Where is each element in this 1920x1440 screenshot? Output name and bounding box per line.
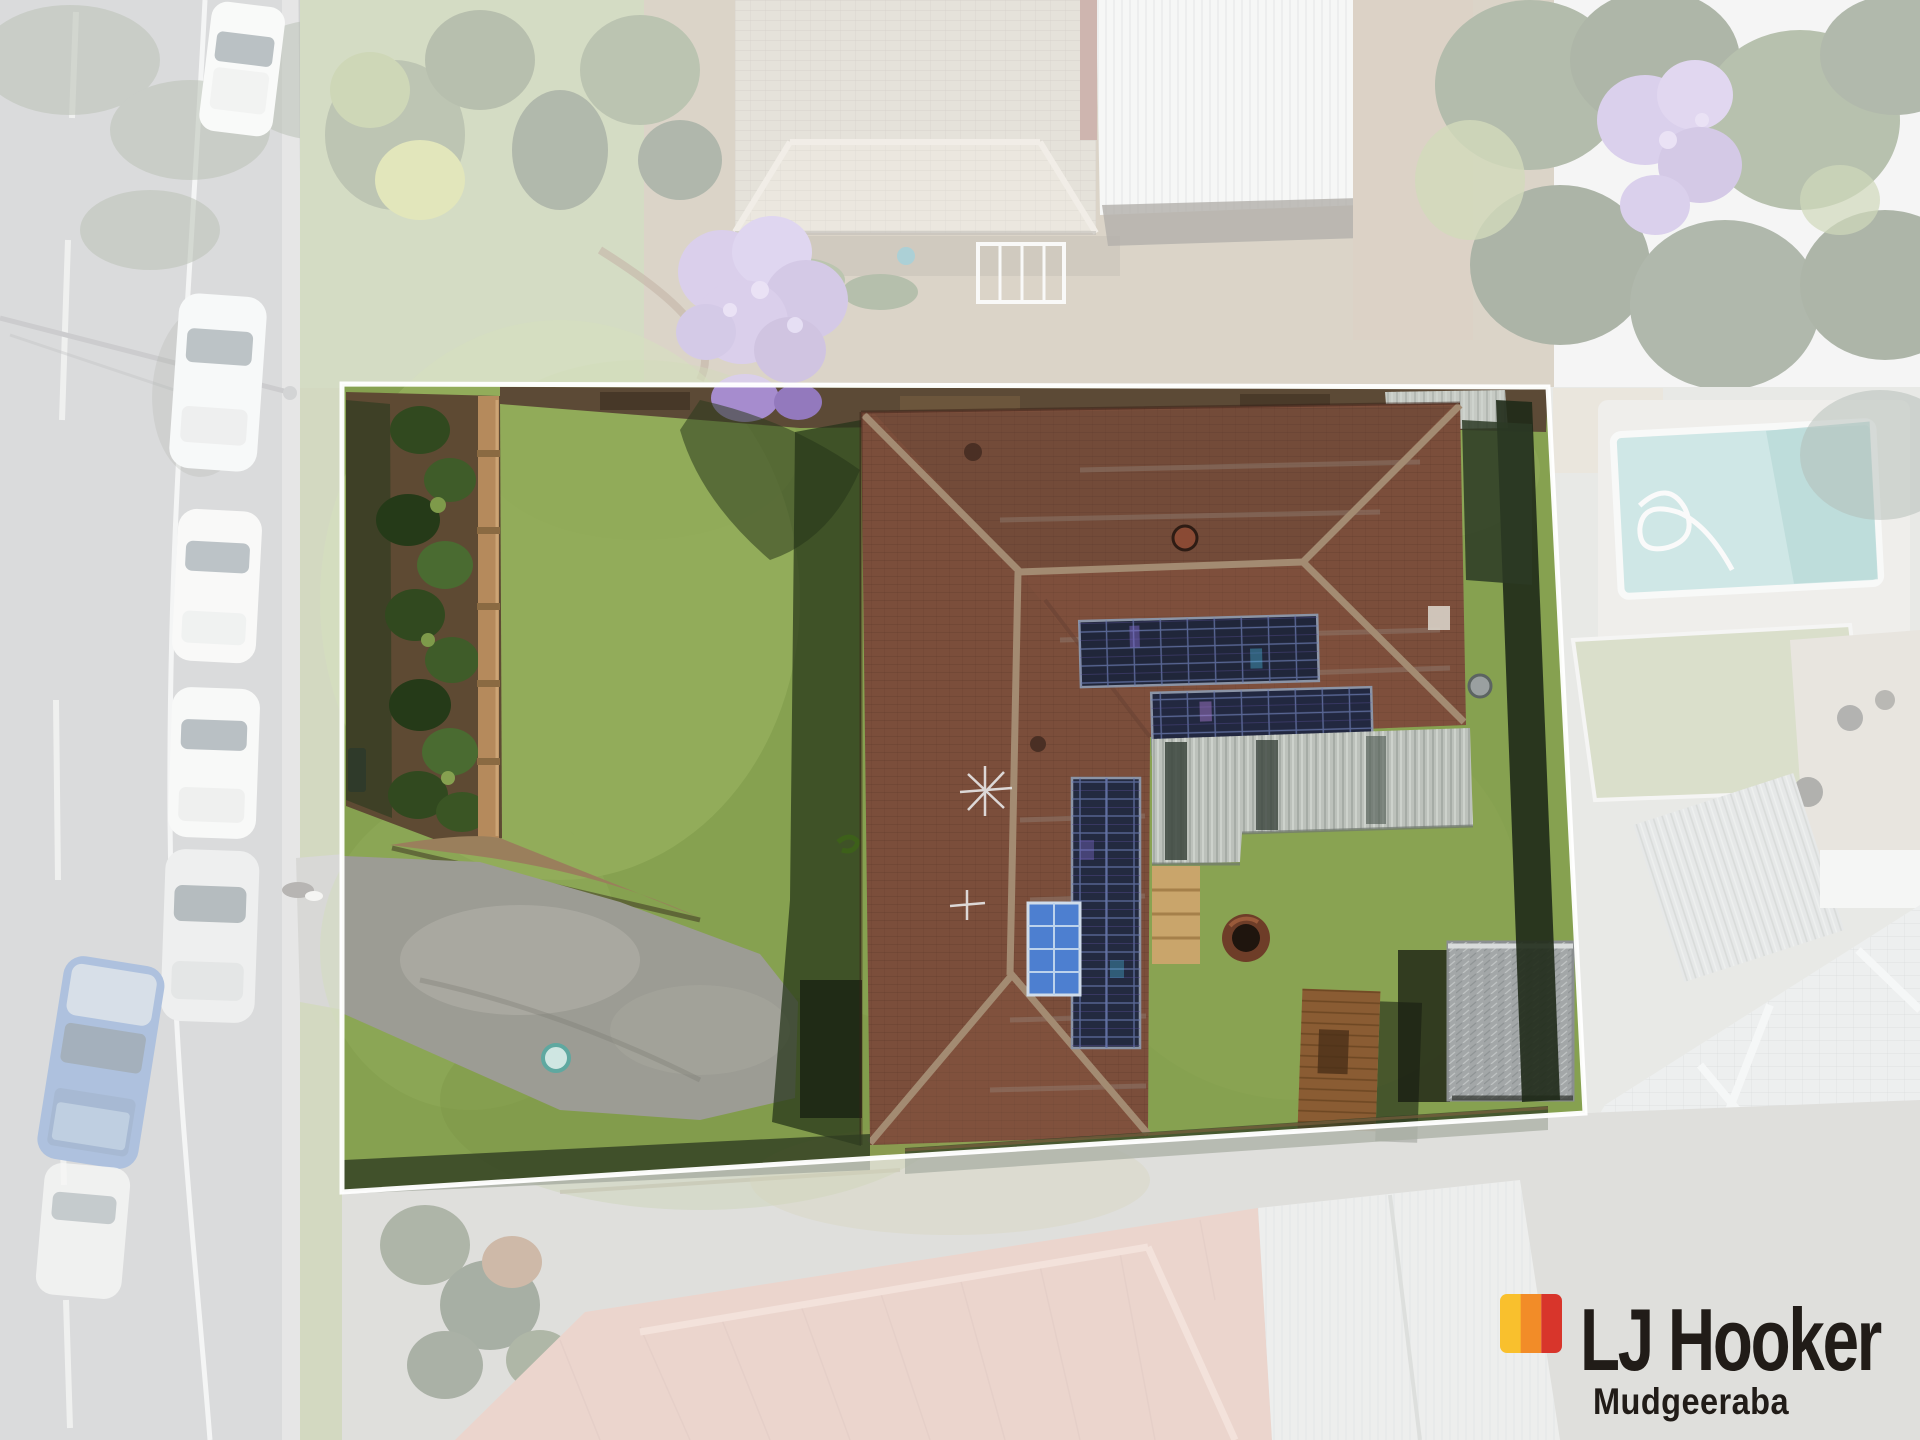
carport-shade — [800, 980, 862, 1118]
logo-stripe-red — [1541, 1294, 1562, 1353]
east-hedge-upper — [1462, 420, 1532, 585]
logo-stripe-yellow — [1500, 1294, 1521, 1353]
logo-stripe-orange — [1521, 1294, 1542, 1353]
solar-array-upper — [1079, 615, 1319, 687]
garden-pot — [543, 1045, 569, 1071]
timber-landing — [1152, 866, 1200, 964]
whirlybird — [1428, 606, 1450, 630]
roof-vent — [964, 443, 982, 461]
chimney-flue — [1173, 526, 1197, 550]
office-name: Mudgeeraba — [1593, 1381, 1789, 1422]
roof-vent — [1030, 736, 1046, 752]
skylight-strip — [1366, 736, 1386, 824]
solar-array-vertical — [1072, 778, 1140, 1048]
skylight-strip — [1165, 742, 1187, 860]
aerial-photo-stage: LJ Hooker Mudgeeraba — [0, 0, 1920, 1440]
gazebo-shadow — [1398, 950, 1450, 1102]
fire-pit — [1222, 914, 1270, 962]
aerial-photo: LJ Hooker Mudgeeraba — [0, 0, 1920, 1440]
deck-furniture — [1318, 1029, 1350, 1074]
logo-mark — [1500, 1294, 1562, 1353]
brand-name: LJ Hooker — [1580, 1290, 1881, 1389]
skylight-strip — [1256, 740, 1278, 830]
solar-array-blue — [1028, 903, 1080, 995]
wheelie-bin — [348, 748, 366, 792]
water-tank — [1469, 675, 1491, 697]
